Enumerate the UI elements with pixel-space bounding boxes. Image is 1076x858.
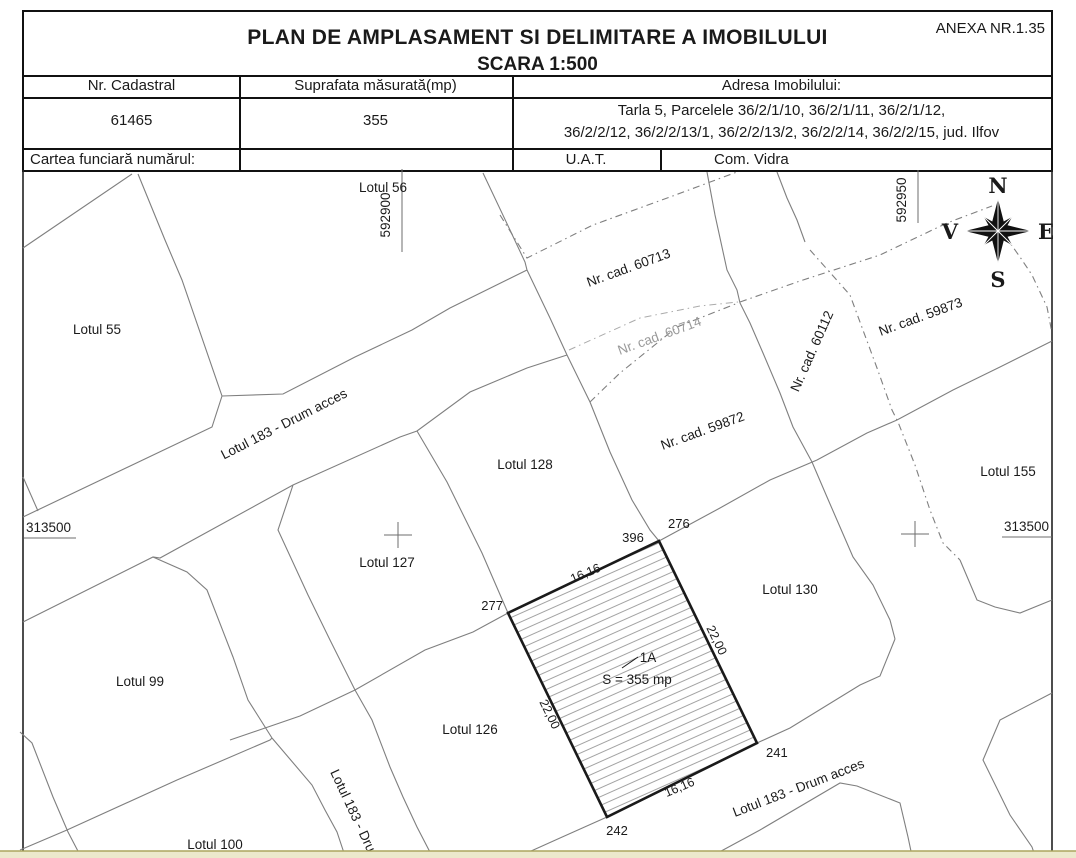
table-rule bbox=[660, 148, 662, 170]
table-rule bbox=[24, 97, 1051, 99]
grid-marks bbox=[24, 169, 1052, 548]
cadastral-map: N S E V 592900 592950 313500 313500 Lotu… bbox=[0, 168, 1076, 858]
lot-130-label: Lotul 130 bbox=[762, 582, 818, 597]
easting-left-label: 592900 bbox=[378, 192, 393, 237]
header-table: ANEXA NR.1.35 PLAN DE AMPLASAMENT SI DEL… bbox=[22, 10, 1053, 172]
col-header-suprafata: Suprafata măsurată(mp) bbox=[239, 77, 512, 94]
lot-155-label: Lotul 155 bbox=[980, 464, 1036, 479]
road-183-upper-label: Lotul 183 - Drum acces bbox=[218, 386, 349, 463]
lot-128-label: Lotul 128 bbox=[497, 457, 553, 472]
value-suprafata: 355 bbox=[239, 112, 512, 129]
uat-value: Com. Vidra bbox=[714, 151, 789, 168]
compass-west-label: V bbox=[941, 219, 959, 244]
col-header-cadastral: Nr. Cadastral bbox=[24, 77, 239, 94]
lot-56-label: Lotul 56 bbox=[359, 180, 407, 195]
cad-59872-label: Nr. cad. 59872 bbox=[659, 409, 747, 453]
value-adresa-line2: 36/2/2/12, 36/2/2/13/1, 36/2/2/13/2, 36/… bbox=[512, 124, 1051, 141]
lot-100-label: Lotul 100 bbox=[187, 837, 243, 852]
road-183-southeast-label: Lotul 183 - Drum acces bbox=[731, 756, 867, 820]
compass-south-label: S bbox=[990, 267, 1005, 292]
lot-55-label: Lotul 55 bbox=[73, 322, 121, 337]
col-header-adresa: Adresa Imobilului: bbox=[512, 77, 1051, 94]
value-cadastral: 61465 bbox=[24, 112, 239, 129]
easting-right-label: 592950 bbox=[894, 177, 909, 222]
cadastral-plan-page: ANEXA NR.1.35 PLAN DE AMPLASAMENT SI DEL… bbox=[0, 0, 1076, 858]
point-241-label: 241 bbox=[766, 745, 788, 760]
northing-right-label: 313500 bbox=[1004, 519, 1049, 534]
lot-99-label: Lotul 99 bbox=[116, 674, 164, 689]
cad-60713-label: Nr. cad. 60713 bbox=[585, 246, 673, 290]
point-276-label: 276 bbox=[668, 516, 690, 531]
compass-east-label: E bbox=[1038, 219, 1054, 244]
parcel-id-label: 1A bbox=[640, 650, 657, 665]
bottom-scan-strip bbox=[0, 851, 1076, 858]
cad-59873-label: Nr. cad. 59873 bbox=[877, 295, 965, 339]
cartea-funciara-label: Cartea funciară numărul: bbox=[30, 151, 195, 168]
point-242-label: 242 bbox=[606, 823, 628, 838]
lot-126-label: Lotul 126 bbox=[442, 722, 498, 737]
compass-rose: N S E V bbox=[941, 173, 1054, 292]
page-title: PLAN DE AMPLASAMENT SI DELIMITARE A IMOB… bbox=[24, 26, 1051, 50]
point-277-label: 277 bbox=[481, 598, 503, 613]
lot-127-label: Lotul 127 bbox=[359, 555, 415, 570]
northing-left-label: 313500 bbox=[26, 520, 71, 535]
scale-subtitle: SCARA 1:500 bbox=[24, 54, 1051, 76]
cad-60714-label: Nr. cad. 60714 bbox=[616, 314, 704, 358]
parcel-area-label: S = 355 mp bbox=[602, 672, 671, 687]
cad-60112-label: Nr. cad. 60112 bbox=[787, 308, 836, 393]
road-183-lower-label: Lotul 183 - Drum acces bbox=[327, 767, 400, 858]
point-396-label: 396 bbox=[622, 530, 644, 545]
value-adresa-line1: Tarla 5, Parcelele 36/2/1/10, 36/2/1/11,… bbox=[512, 102, 1051, 119]
map-border bbox=[23, 170, 1052, 851]
uat-label: U.A.T. bbox=[512, 151, 660, 168]
parcel-boundaries bbox=[20, 172, 1052, 856]
table-rule bbox=[24, 148, 1051, 150]
compass-north-label: N bbox=[988, 173, 1007, 198]
